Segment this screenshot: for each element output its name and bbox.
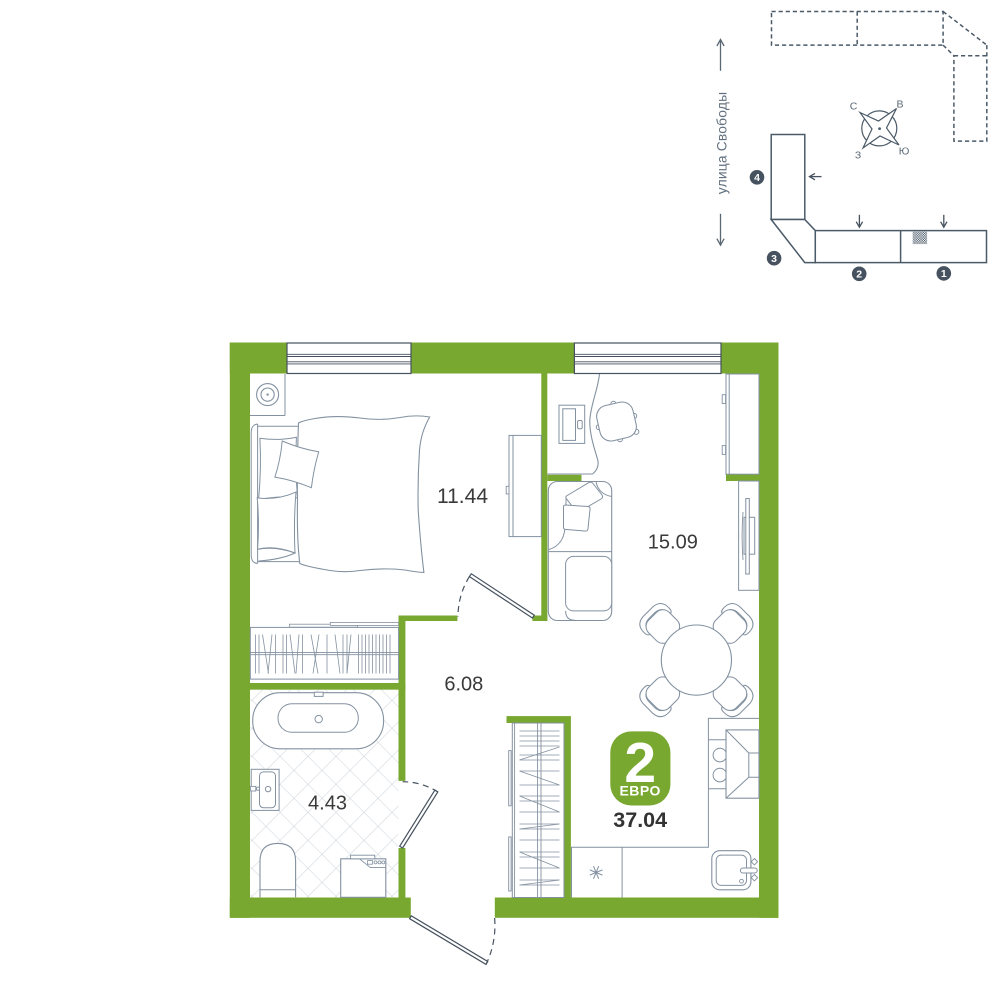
svg-text:11.44: 11.44 — [437, 485, 488, 508]
svg-text:6.08: 6.08 — [444, 674, 483, 696]
svg-text:З: З — [855, 150, 861, 162]
svg-text:Ю: Ю — [899, 146, 910, 158]
svg-text:улица Свободы: улица Свободы — [715, 92, 730, 194]
svg-text:3: 3 — [771, 253, 777, 265]
svg-text:В: В — [896, 99, 903, 111]
svg-text:4.43: 4.43 — [308, 793, 347, 815]
svg-text:37.04: 37.04 — [613, 808, 667, 832]
svg-text:4: 4 — [754, 172, 760, 184]
svg-text:ЕВРО: ЕВРО — [619, 782, 661, 798]
svg-text:1: 1 — [941, 268, 947, 280]
svg-text:2: 2 — [856, 269, 862, 281]
svg-text:15.09: 15.09 — [648, 532, 698, 554]
svg-text:С: С — [850, 101, 858, 113]
